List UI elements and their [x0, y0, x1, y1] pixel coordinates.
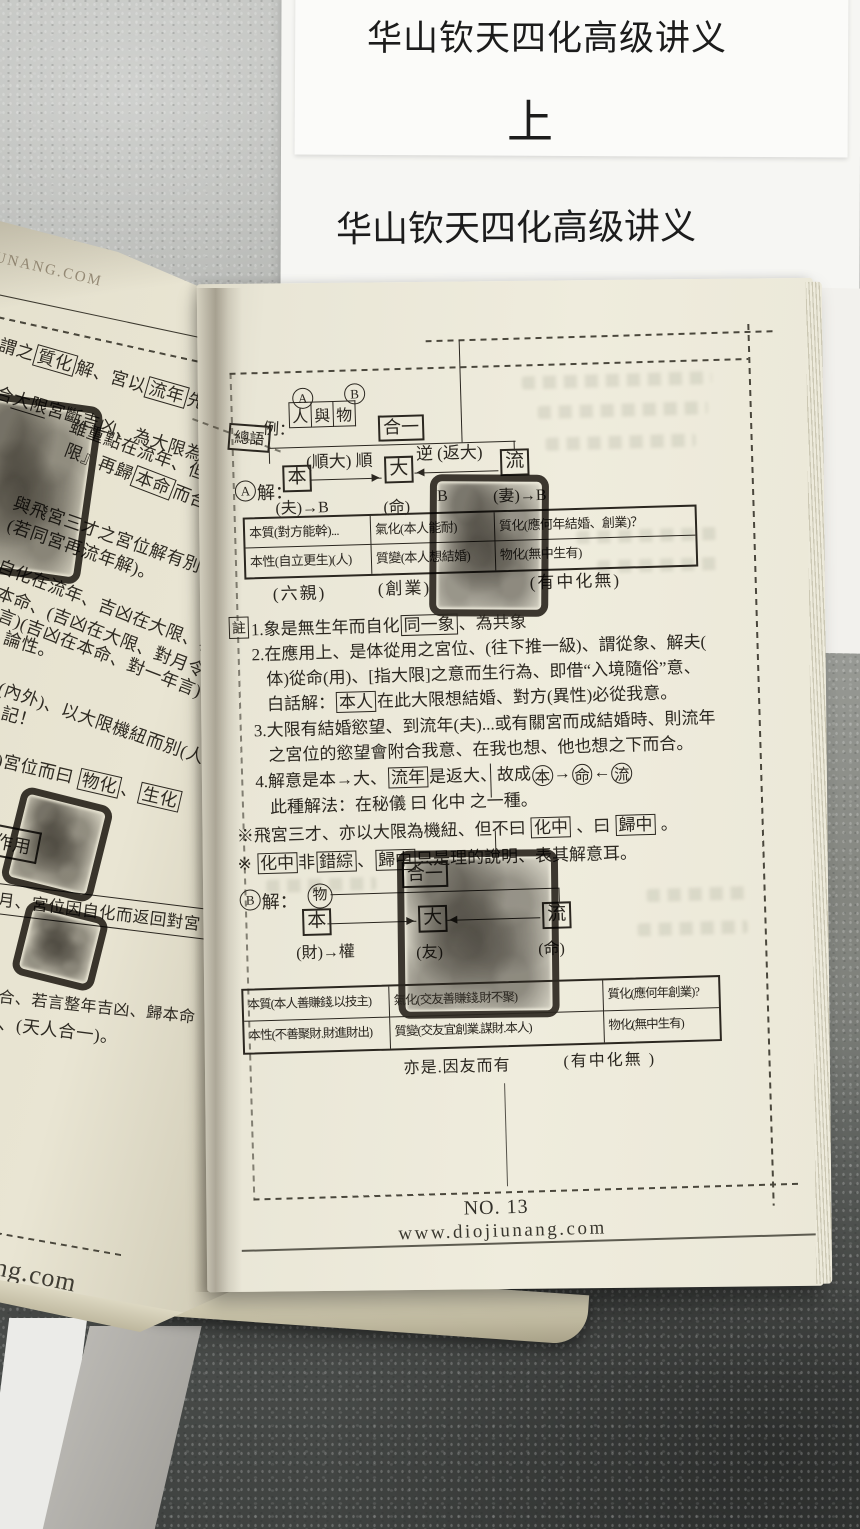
table-b-caption: 亦是.因友而有 [403, 1051, 511, 1078]
cover-title-bottom: 华山钦天四化高级讲义 [328, 197, 704, 252]
cover-title-top: 华山钦天四化高级讲义 [352, 10, 742, 61]
node-ben-b: 本 [302, 908, 332, 936]
cover-volume-label: 上 [495, 86, 565, 152]
subject-cell: 與 [311, 401, 334, 428]
subject-cell: 物 [333, 400, 356, 427]
unity-box: 合一 [378, 414, 425, 441]
ink-stamp [429, 474, 549, 617]
arrow-label-shun: (順大) 順 [306, 446, 373, 473]
dashed-border-right [747, 324, 774, 1206]
arrow-ben-to-da [310, 478, 382, 481]
table-b-cell: 質化(應何年創業)? [603, 977, 719, 1011]
line-wu-down [558, 888, 559, 902]
sub-label-ben-b: (財)→權 [296, 938, 355, 964]
table-b-cell: 本性(不善聚財.財進財出) [244, 1018, 391, 1053]
table-a-cell: 本質(對方能幹)... [245, 516, 372, 549]
table-a-caption: (創業) [377, 573, 431, 600]
photo-of-open-book: 华山钦天四化高级讲义 上 华山钦天四化高级讲义 IUNANG.COM 謂之質化解… [0, 0, 860, 1529]
right-page-printed-area: 總語 例： A B 人 與 物 合一 A 解： 本 (順大) 順 大 逆 (返大… [189, 272, 834, 1297]
fold-line [504, 1083, 508, 1186]
node-liu: 流 [500, 448, 530, 476]
section-b-label: 解： [261, 887, 298, 914]
fold-line [459, 340, 463, 442]
node-wu: 物 [307, 883, 333, 909]
left-page-dashed-border-bottom [0, 1232, 124, 1257]
right-page: 總語 例： A B 人 與 物 合一 A 解： 本 (順大) 順 大 逆 (返大… [197, 278, 824, 1292]
table-a-caption: (六親) [272, 578, 326, 605]
table-b: 本質(本人善賺錢.以技主) 氣化(交友善賺錢.財不聚) 質化(應何年創業)? 本… [241, 975, 722, 1055]
table-b-cell: 本質(本人善賺錢.以技主) [243, 987, 390, 1022]
subject-cell: 人 [288, 402, 312, 429]
node-da: 大 [384, 456, 414, 484]
book-gutter-shadow [194, 288, 242, 1292]
table-b-cell: 質變(交友宜創業.謀財.本人) [390, 1011, 605, 1048]
table-b-caption: (有中化無 ) [563, 1045, 656, 1072]
arrow-label-ni: 逆 (返大) [415, 438, 482, 465]
table-b-cell: 物化(無中生有) [604, 1008, 720, 1042]
table-a-cell: 本性(自立更生)(人) [246, 545, 373, 578]
bracket-stub-left [269, 448, 270, 464]
section-b-circle: B [239, 889, 261, 911]
page-number: NO. 13 [463, 1196, 529, 1221]
left-page-watermark-top: IUNANG.COM [0, 248, 104, 291]
dashed-border-outer-top [426, 330, 776, 342]
arrow-liu-to-da [414, 470, 498, 473]
